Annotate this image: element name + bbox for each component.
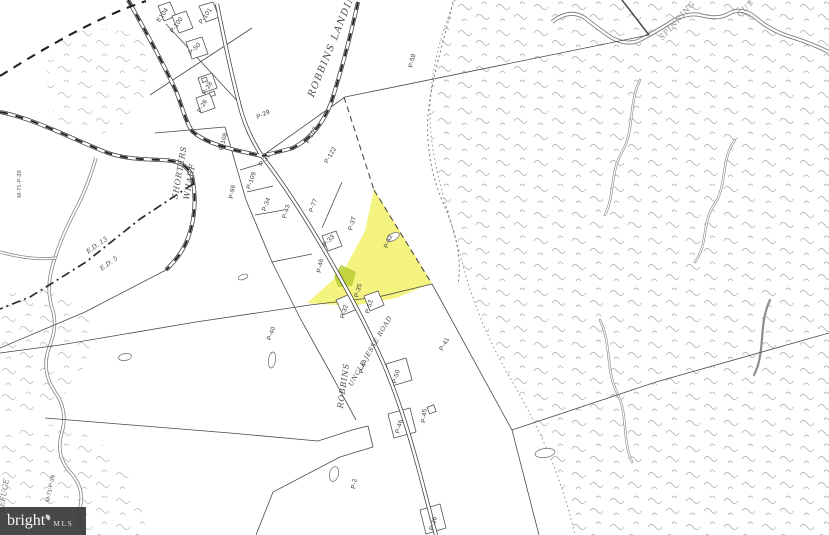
parcel-label: P-43 bbox=[281, 204, 291, 220]
house-outline bbox=[209, 91, 215, 96]
parcel-label: P-122 bbox=[323, 146, 338, 165]
map-reference-label: M-71-P-39 bbox=[17, 170, 23, 197]
parcel-label: P-109 bbox=[245, 171, 258, 190]
brightmls-wordmark: bright bbox=[7, 513, 45, 529]
parcel-label: P-48 bbox=[316, 258, 325, 273]
parcel-label: P-2 bbox=[350, 478, 359, 490]
parcel-label: P-40 bbox=[266, 325, 278, 341]
parcel-label: P-107 bbox=[304, 126, 319, 145]
road-label-robbins: ROBBINS bbox=[336, 362, 351, 409]
parcel-label: P-77 bbox=[308, 197, 320, 213]
parcel-label: P-37 bbox=[347, 216, 357, 232]
parcel-label: P-45 bbox=[420, 408, 428, 423]
brightmls-watermark: bright MLS bbox=[0, 507, 86, 535]
parcel-label: P-96 bbox=[228, 184, 237, 199]
map-canvas: ROBBINS LANDING SHORTERS WHARF ROBBINS U… bbox=[0, 0, 829, 535]
parcel-label: P-34 bbox=[261, 196, 273, 212]
parcel-label: P-58 bbox=[408, 53, 418, 69]
brightmls-suffix: MLS bbox=[53, 519, 73, 528]
district-label-ed5: E.D. 5 bbox=[98, 254, 120, 273]
parcel-map: ROBBINS LANDING SHORTERS WHARF ROBBINS U… bbox=[0, 0, 829, 535]
parcel-label: P-41 bbox=[438, 336, 451, 352]
parcel-label: P-29 bbox=[255, 108, 271, 120]
flame-icon bbox=[45, 513, 52, 520]
road-label-robbins-landing: ROBBINS LANDING bbox=[306, 0, 362, 100]
